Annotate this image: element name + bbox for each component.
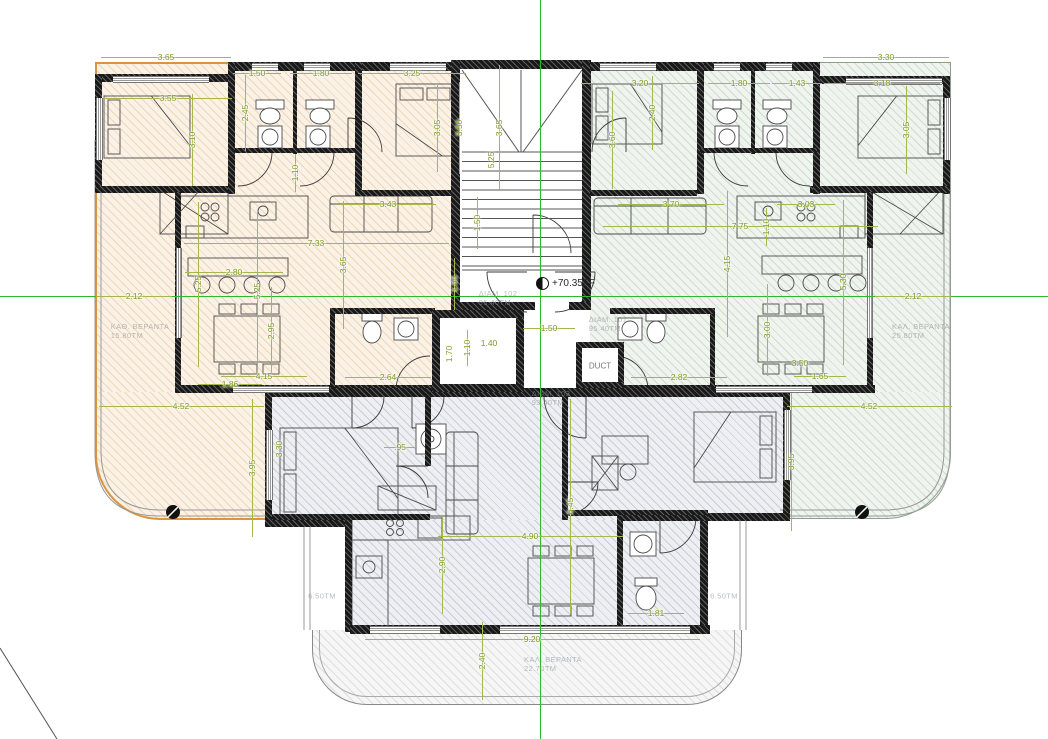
dimension-label: 3.05 bbox=[901, 122, 911, 139]
dimension-label: 6.45 bbox=[565, 498, 575, 515]
wall-segment bbox=[235, 148, 359, 153]
dimension-label: 9.20 bbox=[524, 634, 541, 644]
dimension-label: 2.64 bbox=[380, 372, 397, 382]
dimension-label: 3.70 bbox=[663, 199, 680, 209]
area-label: ΔΙΑΜ. 10393.40ΤΜ bbox=[532, 389, 571, 407]
area-label: 6.50ΤΜ bbox=[710, 592, 738, 601]
dimension-label: 1.70 bbox=[444, 346, 454, 363]
wall-segment bbox=[700, 513, 790, 521]
dimension-label: 1.81 bbox=[648, 608, 665, 618]
dimension-label: 4.52 bbox=[861, 401, 878, 411]
wall-segment bbox=[432, 384, 524, 392]
dimension-label: 4.52 bbox=[173, 401, 190, 411]
dimension-label: 3.50 bbox=[454, 120, 464, 137]
wall-segment bbox=[330, 314, 335, 388]
wall-segment bbox=[355, 62, 362, 194]
dimension-label: 1.50 bbox=[249, 68, 266, 78]
wall-segment bbox=[95, 186, 235, 193]
dimension-label: 5.30 bbox=[838, 274, 848, 291]
dimension-label: 2.80 bbox=[226, 267, 243, 277]
wall-segment bbox=[272, 514, 430, 520]
area-label: ΔΙΑΜ. 10195.40ΤΜ bbox=[589, 315, 628, 333]
wall-segment bbox=[620, 515, 708, 521]
dimension-label: 3.65 bbox=[158, 52, 175, 62]
dimension-label: 3.10 bbox=[187, 132, 197, 149]
dimension-label: 1.80 bbox=[731, 78, 748, 88]
window bbox=[370, 626, 440, 634]
dimension-label: 2.95 bbox=[266, 323, 276, 340]
wall-segment bbox=[451, 60, 591, 69]
dimension-label: 1.86 bbox=[222, 379, 239, 389]
dimension-label: 3.25 bbox=[404, 68, 421, 78]
wall-segment bbox=[810, 186, 950, 193]
wall-segment bbox=[516, 310, 524, 392]
vertical-centerline bbox=[540, 0, 541, 739]
window bbox=[96, 98, 103, 160]
area-label: 6.50ΤΜ bbox=[308, 592, 336, 601]
dimension-label: 2.12 bbox=[126, 291, 143, 301]
dimension-label: 3.30 bbox=[878, 52, 895, 62]
wall-segment bbox=[265, 520, 352, 527]
dimension-label: 3.30 bbox=[274, 441, 284, 458]
dimension-label: 3.03 bbox=[798, 199, 815, 209]
dimension-label: .95 bbox=[394, 442, 406, 452]
wall-segment bbox=[582, 60, 591, 310]
dimension-label: 1.80 bbox=[313, 68, 330, 78]
window bbox=[176, 248, 182, 338]
dimension-label: 1.50 bbox=[472, 215, 482, 232]
dimension-label: 5.25 bbox=[193, 276, 203, 293]
wall-segment bbox=[576, 342, 624, 348]
dimension-label: 2.40 bbox=[477, 653, 487, 670]
dimension-label: 1.55 bbox=[449, 276, 459, 293]
wall-segment bbox=[700, 513, 708, 632]
wall-segment bbox=[432, 310, 440, 392]
wall-segment bbox=[355, 190, 458, 196]
dimension-label: 3.95 bbox=[786, 454, 796, 471]
wall-segment bbox=[697, 62, 704, 194]
dimension-label: 2.82 bbox=[671, 372, 688, 382]
wall-segment bbox=[345, 520, 352, 632]
dimension-label: 2.40 bbox=[647, 105, 657, 122]
level-marker-icon bbox=[536, 277, 549, 290]
window bbox=[944, 98, 951, 160]
dimension-label: 3.55 bbox=[160, 93, 177, 103]
wall-segment bbox=[569, 302, 591, 310]
window bbox=[266, 430, 273, 500]
wall-segment bbox=[432, 310, 524, 318]
wall-segment bbox=[813, 62, 820, 194]
area-label: ΚΑΘ. ΒΕΡΑΝΤΑ15.80ΤΜ bbox=[111, 322, 170, 340]
window bbox=[233, 386, 329, 393]
dimension-label: 1.10 bbox=[290, 165, 300, 182]
area-label: ΚΑΛ. ΒΕΡΑΝΤΑ22.70ΤΜ bbox=[524, 655, 582, 673]
level-marker-text: +70.35FF bbox=[552, 278, 595, 289]
dimension-label: 3.65 bbox=[494, 120, 504, 137]
duct-label: DUCT bbox=[589, 362, 611, 371]
wall-segment bbox=[293, 70, 297, 154]
dimension-label: 1.43 bbox=[789, 78, 806, 88]
dimension-label: 1.50 bbox=[541, 323, 558, 333]
wall-segment bbox=[265, 388, 790, 397]
window bbox=[766, 63, 792, 71]
dimension-label: 3.00 bbox=[762, 322, 772, 339]
dimension-label: 5.25 bbox=[486, 152, 496, 169]
wall-segment bbox=[590, 190, 697, 196]
dimension-label: 7.33 bbox=[308, 238, 325, 248]
dimension-label: 1.10 bbox=[761, 219, 771, 236]
window bbox=[600, 63, 656, 71]
dimension-label: 5.25 bbox=[252, 283, 262, 300]
wall-segment bbox=[617, 515, 623, 632]
dimension-label: 1.40 bbox=[481, 338, 498, 348]
floor-plan: 3.651.501.803.253.553.102.453.053.501.10… bbox=[0, 0, 1048, 739]
wall-segment bbox=[228, 62, 235, 194]
wall-segment bbox=[700, 148, 817, 153]
dimension-label: 1.10 bbox=[462, 340, 472, 357]
dimension-label: 4.90 bbox=[522, 531, 539, 541]
area-label: ΔΙΑΜ. 10295.40ΤΜ bbox=[479, 289, 518, 307]
wall-segment bbox=[425, 392, 431, 466]
wall-segment bbox=[330, 308, 435, 314]
dimension-label: 3.18 bbox=[874, 78, 891, 88]
window bbox=[500, 626, 690, 634]
window bbox=[714, 63, 740, 71]
dimension-label: 3.20 bbox=[632, 78, 649, 88]
level-marker: +70.35FF bbox=[536, 277, 595, 290]
dimension-label: 3.60 bbox=[607, 132, 617, 149]
wall-segment bbox=[576, 382, 624, 388]
window bbox=[716, 386, 812, 393]
dimension-label: 2.12 bbox=[905, 291, 922, 301]
dimension-label: 4.15 bbox=[722, 256, 732, 273]
window bbox=[113, 76, 209, 83]
dimension-label: 7.75 bbox=[732, 221, 749, 231]
window bbox=[867, 248, 873, 338]
dimension-label: 2.90 bbox=[437, 557, 447, 574]
dimension-label: 4.15 bbox=[256, 371, 273, 381]
area-label: ΚΑΛ. ΒΕΡΑΝΤΑ25.80ΤΜ bbox=[892, 322, 950, 340]
dimension-label: 2.45 bbox=[240, 105, 250, 122]
dimension-label: 3.65 bbox=[338, 257, 348, 274]
dimension-label: 3.95 bbox=[247, 460, 257, 477]
dimension-label: 3.43 bbox=[380, 199, 397, 209]
dimension-label: 3.05 bbox=[432, 120, 442, 137]
wall-segment bbox=[610, 308, 715, 314]
dimension-label: 1.65 bbox=[812, 371, 829, 381]
dimension-label: 3.50 bbox=[792, 358, 809, 368]
